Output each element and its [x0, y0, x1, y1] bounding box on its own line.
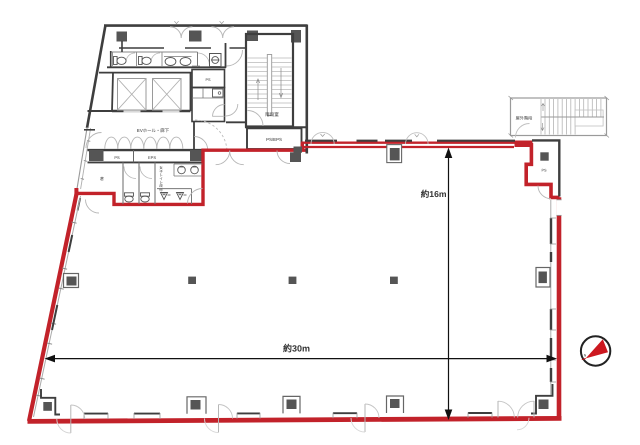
svg-text:約16m: 約16m: [421, 189, 447, 199]
svg-text:倉: 倉: [100, 176, 104, 181]
svg-text:階段室: 階段室: [265, 112, 279, 117]
svg-text:PS: PS: [541, 169, 547, 173]
svg-text:PS/EPS: PS/EPS: [266, 137, 282, 142]
svg-text:PS: PS: [205, 78, 211, 82]
svg-text:屋外階段: 屋外階段: [516, 116, 534, 121]
svg-text:EPS: EPS: [148, 155, 156, 160]
svg-text:EVホール・廊下: EVホール・廊下: [137, 128, 170, 133]
svg-text:女子トイレ改修: 女子トイレ改修: [158, 165, 163, 192]
svg-text:約30m: 約30m: [283, 344, 310, 354]
svg-text:PS: PS: [114, 155, 120, 160]
